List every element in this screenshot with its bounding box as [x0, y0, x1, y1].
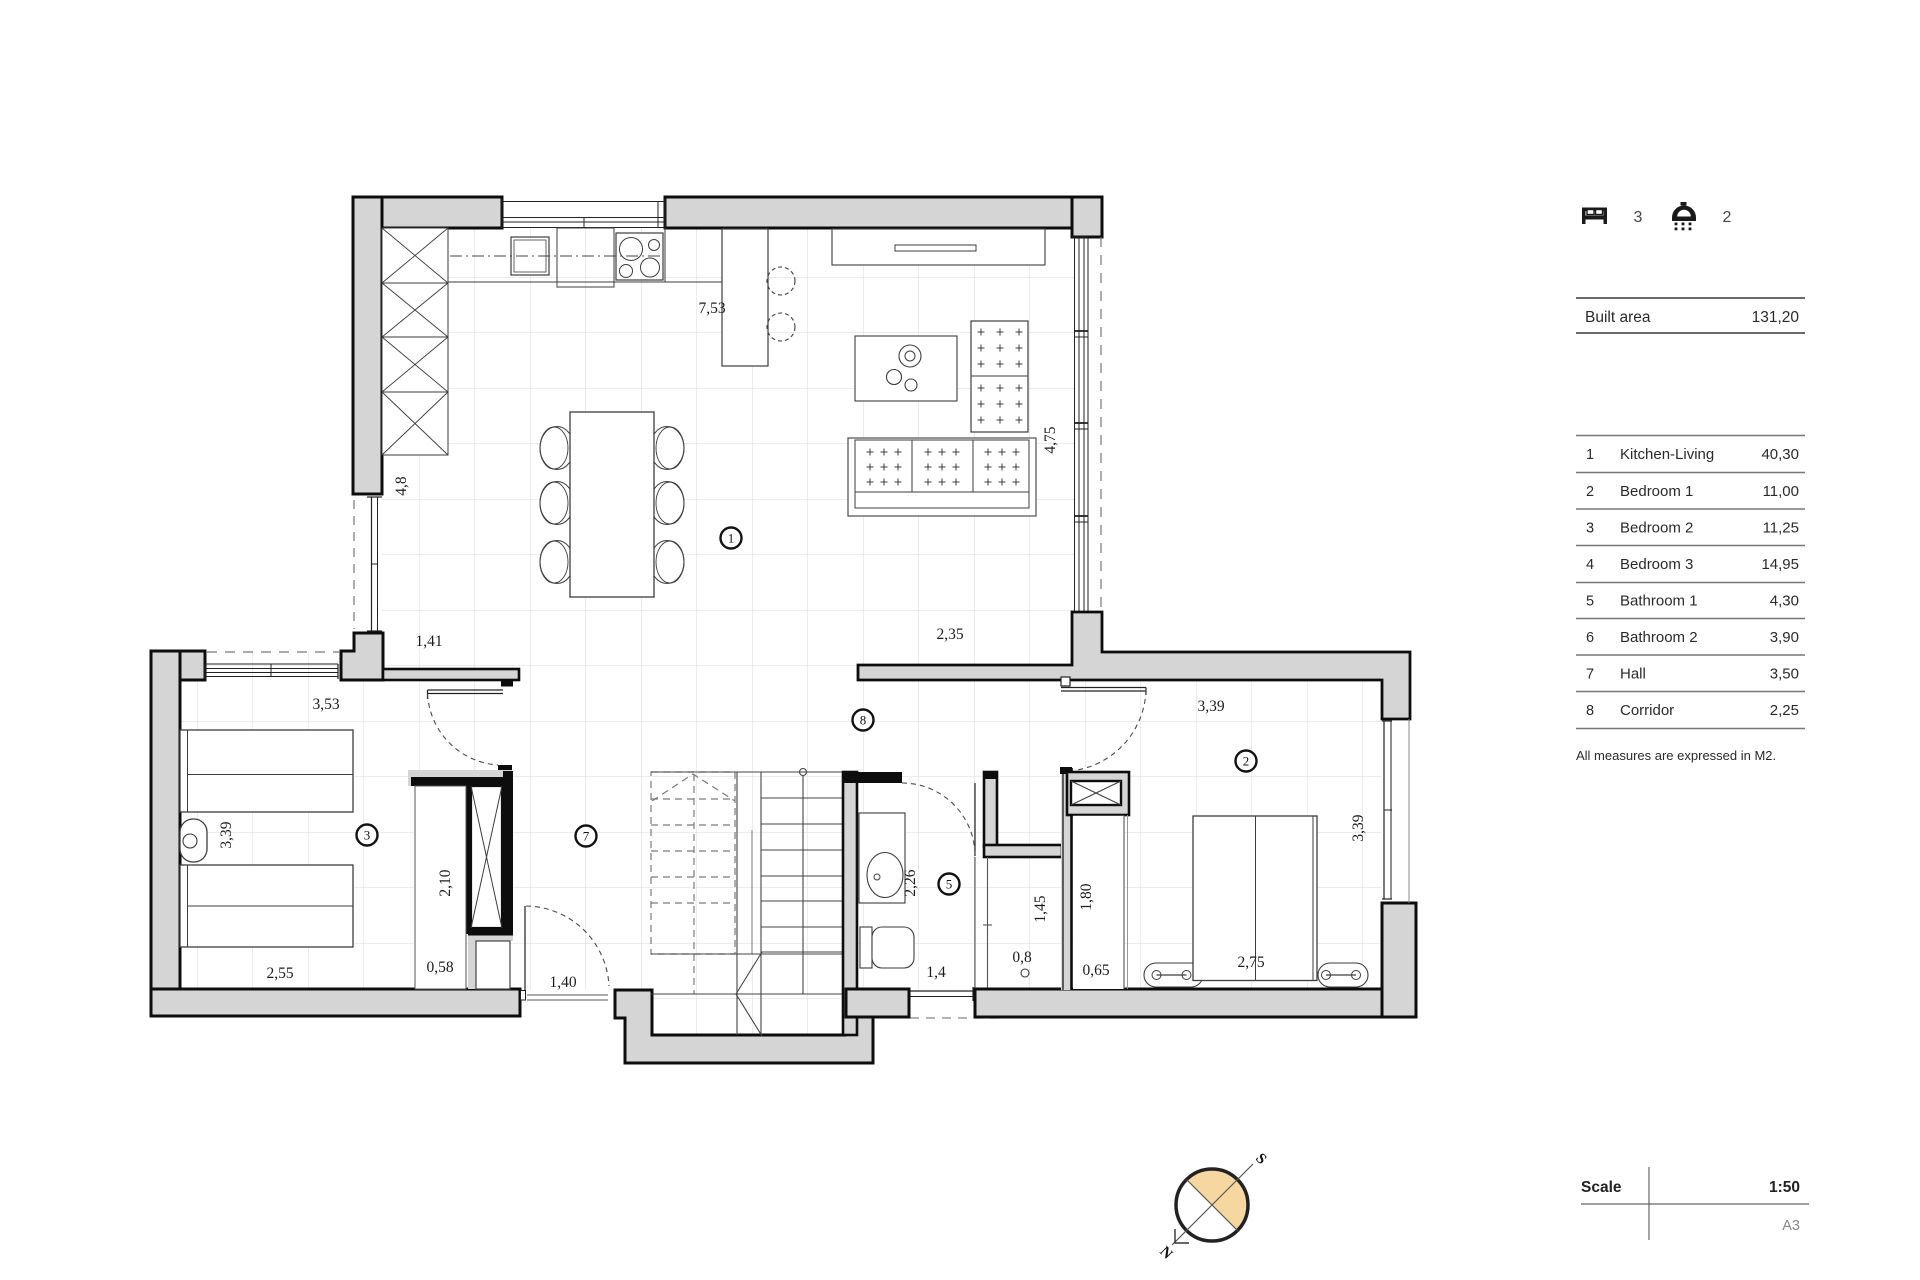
svg-text:Bathroom 1: Bathroom 1	[1620, 593, 1698, 610]
svg-text:14,95: 14,95	[1761, 556, 1799, 573]
svg-text:3,39: 3,39	[1350, 814, 1367, 841]
svg-text:2: 2	[1243, 754, 1250, 769]
svg-text:Bedroom 2: Bedroom 2	[1620, 519, 1693, 536]
svg-text:7,53: 7,53	[698, 300, 725, 317]
svg-text:1: 1	[728, 531, 735, 546]
svg-text:2: 2	[1723, 209, 1732, 226]
svg-text:1:50: 1:50	[1769, 1179, 1800, 1196]
svg-text:5: 5	[1586, 594, 1594, 610]
svg-text:Bedroom 3: Bedroom 3	[1620, 556, 1693, 573]
svg-text:2,35: 2,35	[936, 626, 963, 643]
svg-text:2,55: 2,55	[266, 965, 293, 982]
svg-text:1,80: 1,80	[1078, 883, 1095, 910]
svg-text:3,39: 3,39	[1197, 698, 1224, 715]
svg-text:131,20: 131,20	[1752, 309, 1800, 326]
svg-text:0,65: 0,65	[1082, 962, 1109, 979]
svg-text:1: 1	[1586, 447, 1594, 463]
svg-text:All measures are expressed in: All measures are expressed in M2.	[1576, 748, 1776, 763]
svg-text:11,25: 11,25	[1763, 519, 1799, 536]
svg-text:8: 8	[860, 713, 867, 728]
svg-text:4,75: 4,75	[1042, 426, 1059, 453]
svg-text:8: 8	[1586, 703, 1594, 719]
svg-text:0,58: 0,58	[426, 959, 453, 976]
svg-text:1,41: 1,41	[415, 633, 442, 650]
svg-text:Bedroom 1: Bedroom 1	[1620, 483, 1693, 500]
svg-text:4: 4	[1586, 557, 1594, 573]
svg-text:2,25: 2,25	[1770, 702, 1799, 719]
svg-text:2,75: 2,75	[1237, 954, 1264, 971]
svg-text:0,8: 0,8	[1012, 949, 1032, 966]
svg-text:6: 6	[1586, 630, 1594, 646]
svg-text:7: 7	[583, 829, 590, 844]
svg-text:3: 3	[364, 828, 371, 843]
svg-text:Corridor: Corridor	[1620, 702, 1674, 719]
svg-text:3,39: 3,39	[218, 821, 235, 848]
svg-text:1,45: 1,45	[1032, 895, 1049, 922]
svg-text:3,90: 3,90	[1770, 629, 1799, 646]
svg-text:4,8: 4,8	[393, 476, 410, 496]
svg-text:3,50: 3,50	[1770, 665, 1799, 682]
svg-text:40,30: 40,30	[1761, 446, 1799, 463]
svg-text:1,4: 1,4	[926, 964, 946, 981]
svg-text:A3: A3	[1782, 1218, 1800, 1234]
svg-text:2,10: 2,10	[437, 869, 454, 896]
svg-text:2: 2	[1586, 484, 1594, 500]
svg-text:Kitchen-Living: Kitchen-Living	[1620, 446, 1714, 463]
svg-text:2,26: 2,26	[902, 869, 919, 896]
svg-text:5: 5	[946, 877, 953, 892]
svg-text:4,30: 4,30	[1770, 593, 1799, 610]
svg-text:Scale: Scale	[1581, 1179, 1622, 1196]
svg-text:7: 7	[1586, 666, 1594, 682]
svg-text:11,00: 11,00	[1763, 483, 1799, 500]
svg-text:Hall: Hall	[1620, 665, 1646, 682]
svg-text:3: 3	[1634, 209, 1643, 226]
svg-text:Built area: Built area	[1585, 309, 1651, 326]
svg-text:3: 3	[1586, 520, 1594, 536]
svg-text:1,40: 1,40	[549, 974, 576, 991]
svg-text:3,53: 3,53	[312, 696, 339, 713]
svg-text:Bathroom 2: Bathroom 2	[1620, 629, 1698, 646]
